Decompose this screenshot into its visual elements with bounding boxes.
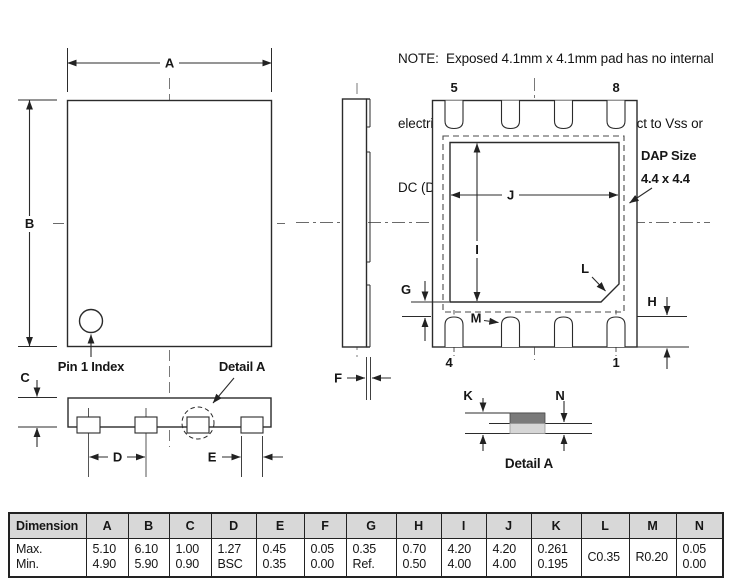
terminal-pad-4 [445,317,463,347]
dimension-table: Dimension A B C D E F G H I J K L M N Ma… [8,512,724,578]
header-i: I [441,513,486,538]
header-m: M [629,513,676,538]
dim-i-label: I [475,242,478,257]
cell-h: 0.700.50 [396,538,441,577]
cell-i: 4.204.00 [441,538,486,577]
dim-j-label: J [507,188,514,203]
detail-pad-plated-part [510,413,545,424]
terminal-pad-6 [502,101,520,129]
side-pad-4 [241,417,263,433]
side-pad-3 [187,417,209,433]
pin-number-4: 4 [445,355,453,370]
header-b: B [128,513,169,538]
dim-m-label: M [471,311,482,326]
header-k: K [531,513,581,538]
side-view: C D E Detail A [18,359,283,477]
dim-b-label: B [25,216,34,231]
header-n: N [676,513,723,538]
row-labels-cell: Max. Min. [9,538,86,577]
cell-n: 0.050.00 [676,538,723,577]
dim-c-label: C [20,370,30,385]
terminal-pad-2 [555,317,573,347]
cell-f: 0.050.00 [304,538,346,577]
header-g: G [346,513,396,538]
cell-g: 0.35Ref. [346,538,396,577]
header-f: F [304,513,346,538]
profile-body [343,99,367,347]
dap-size-label-line1: DAP Size [641,148,696,163]
terminal-pad-1 [607,317,625,347]
terminal-pad-7 [555,101,573,129]
header-e: E [256,513,304,538]
side-pad-2 [135,417,157,433]
package-body-outline [68,101,272,347]
cell-m: R0.20 [629,538,676,577]
cell-d: 1.27BSC [211,538,256,577]
dim-e-label: E [208,450,217,465]
header-d: D [211,513,256,538]
bottom-view: 5 8 4 1 J I DAP Size 4.4 x 4.4 L M [401,78,696,370]
dim-l-label: L [581,261,589,276]
cell-l: C0.35 [581,538,629,577]
cell-k: 0.2610.195 [531,538,581,577]
dim-g-label: G [401,282,411,297]
detail-a-caption: Detail A [505,456,554,471]
pin-number-8: 8 [612,80,619,95]
terminal-pad-3 [502,317,520,347]
header-c: C [169,513,211,538]
pin-number-5: 5 [450,80,457,95]
top-view: A B Pin 1 Index [18,48,285,447]
dim-h-label: H [647,294,656,309]
table-data-row: Max. Min. 5.104.90 6.105.90 1.000.90 1.2… [9,538,723,577]
terminal-pad-5 [445,101,463,129]
header-dimension: Dimension [9,513,86,538]
cell-j: 4.204.00 [486,538,531,577]
terminal-pad-8 [607,101,625,129]
dim-n-label: N [555,388,564,403]
dim-f-label: F [334,371,342,386]
dap-size-label-line2: 4.4 x 4.4 [641,171,691,186]
min-label: Min. [16,557,86,573]
max-label: Max. [16,542,86,558]
dim-d-label: D [113,450,122,465]
header-l: L [581,513,629,538]
pin1-index-circle [80,310,103,333]
dim-a-label: A [165,56,175,71]
pin1-index-label: Pin 1 Index [58,359,125,374]
cell-c: 1.000.90 [169,538,211,577]
cell-b: 6.105.90 [128,538,169,577]
drawing-canvas: A B Pin 1 Index C [0,0,729,512]
detail-pad-base-part [510,424,545,434]
cell-a: 5.104.90 [86,538,128,577]
bottom-view-body [433,101,638,348]
side-pad-1 [77,417,100,433]
detail-a-callout-label: Detail A [219,359,266,374]
header-j: J [486,513,531,538]
pin-number-1: 1 [612,355,619,370]
dim-k-label: K [463,388,473,403]
detail-a-view: K N Detail A [463,388,592,471]
header-h: H [396,513,441,538]
package-drawing-page: NOTE: Exposed 4.1mm x 4.1mm pad has no i… [0,0,729,587]
table-header-row: Dimension A B C D E F G H I J K L M N [9,513,723,538]
cell-e: 0.450.35 [256,538,304,577]
header-a: A [86,513,128,538]
